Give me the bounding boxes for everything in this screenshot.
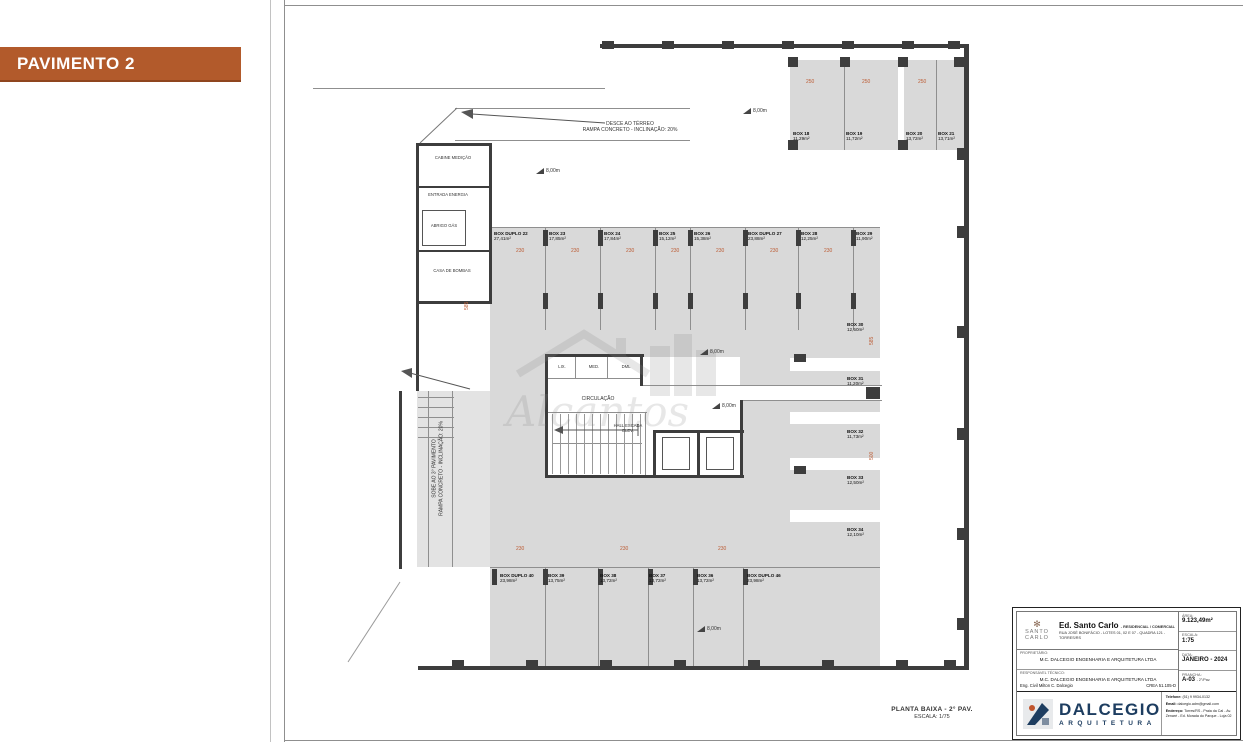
- column-stud: [722, 41, 734, 49]
- dimension-value: 230: [824, 248, 832, 254]
- sheet-fields: ÁREA: 9.123,49m² ESCALA: 1:75 DATA: JANE…: [1178, 612, 1236, 691]
- firm-band: DALCEGIO ARQUITETURA Telefone: (51) 9 99…: [1017, 691, 1236, 735]
- wall-segment: [416, 143, 492, 146]
- column-stud: [898, 57, 908, 67]
- column-stud: [543, 293, 548, 309]
- project-title: Ed. Santo Carlo: [1059, 621, 1119, 630]
- ramp-down-note: DESCE AO TÉRREO RAMPA CONCRETO - INCLINA…: [555, 121, 705, 134]
- responsible-row: RESPONSÁVEL TÉCNICO: M.C. DALCEGIO ENGEN…: [1017, 670, 1179, 691]
- parking-box-label: BOX DUPLO 2227,41m²: [494, 231, 528, 242]
- plan-line: [740, 400, 882, 401]
- wall-segment: [416, 143, 419, 304]
- level-marker: 8,00m: [712, 403, 736, 409]
- room-outline: [662, 437, 690, 470]
- plan-line: [575, 356, 576, 379]
- drawing-caption: PLANTA BAIXA - 2° PAV. ESCALA: 1/75: [872, 706, 992, 720]
- dimension-value: 230: [770, 248, 778, 254]
- sheet-margin-line: [270, 0, 271, 742]
- parking-box-label: BOX 3412,10m²: [847, 527, 864, 538]
- column-stud: [957, 618, 967, 630]
- level-flag-icon: [743, 108, 751, 114]
- column-stud: [598, 230, 603, 246]
- title-block-header: ✻ SANTO CARLO Ed. Santo Carlo - RESIDENC…: [1017, 612, 1179, 650]
- responsible-crea: CREA 51.105-D: [1146, 683, 1176, 688]
- wall-segment: [399, 391, 402, 569]
- wall-segment: [640, 354, 643, 386]
- dimension-value: 230: [716, 248, 724, 254]
- parking-box-label: BOX DUPLO 4623,98m²: [747, 573, 781, 584]
- room-outline: [706, 437, 734, 470]
- sheet-border-top: [284, 5, 1243, 6]
- column-stud: [796, 293, 801, 309]
- column-stud: [526, 660, 538, 669]
- room-label-dml: DML: [612, 364, 640, 369]
- field-data: DATA: JANEIRO - 2024: [1179, 651, 1236, 671]
- column-stud: [492, 569, 497, 585]
- floor-cutout: [643, 386, 882, 400]
- dimension-value: 585: [464, 302, 470, 310]
- title-block: ✻ SANTO CARLO Ed. Santo Carlo - RESIDENC…: [1012, 607, 1241, 740]
- column-stud: [662, 41, 674, 49]
- column-stud: [840, 57, 850, 67]
- column-stud: [842, 41, 854, 49]
- parking-box-label: BOX 3613,72m²: [697, 573, 714, 584]
- sheet-border-bottom: [284, 740, 1243, 741]
- level-flag-icon: [712, 403, 720, 409]
- title-block-inner: ✻ SANTO CARLO Ed. Santo Carlo - RESIDENC…: [1016, 611, 1237, 736]
- owner-label: PROPRIETÁRIO:: [1020, 651, 1176, 655]
- column-stud: [653, 230, 658, 246]
- field-area: ÁREA: 9.123,49m²: [1179, 612, 1236, 632]
- owner-value: M.C. DALCEGIO ENGENHARIA E ARQUITETURA L…: [1020, 657, 1176, 662]
- project-title-area: Ed. Santo Carlo - RESIDENCIAL / COMERCIA…: [1057, 621, 1179, 641]
- dimension-value: 230: [671, 248, 679, 254]
- parking-box-label: BOX 3312,50m²: [847, 475, 864, 486]
- santo-carlo-logo-icon: ✻: [1017, 620, 1057, 629]
- wall-segment: [416, 301, 492, 304]
- wall-segment: [545, 475, 744, 478]
- column-stud: [788, 57, 798, 67]
- field-escala: ESCALA: 1:75: [1179, 632, 1236, 652]
- parking-box-label: BOX 1811,29m²: [793, 131, 810, 142]
- plan-line: [455, 108, 690, 109]
- column-stud: [794, 354, 806, 362]
- parking-box-label: BOX DUPLO 2723,88m²: [748, 231, 782, 242]
- floor-cutout: [790, 412, 880, 424]
- owner-row: PROPRIETÁRIO: M.C. DALCEGIO ENGENHARIA E…: [1017, 650, 1179, 670]
- parking-box-label: BOX 3713,72m²: [649, 573, 666, 584]
- floor-cutout: [790, 510, 880, 522]
- dimension-value: 250: [918, 79, 926, 85]
- column-stud: [600, 660, 612, 669]
- santo-carlo-logo: ✻ SANTO CARLO: [1017, 620, 1057, 641]
- column-stud: [851, 293, 856, 309]
- project-subtitle: - RESIDENCIAL / COMERCIAL: [1121, 625, 1175, 629]
- room-label-hall: HALL ESCADA ELEV.: [600, 423, 656, 433]
- wall-segment: [545, 354, 644, 357]
- contact-phone: (51) 9 9934-0132: [1182, 695, 1210, 699]
- parking-box-label: BOX 2911,90m²: [856, 231, 873, 242]
- level-marker: 8,00m: [536, 168, 560, 174]
- column-stud: [452, 660, 464, 669]
- column-stud: [653, 293, 658, 309]
- parking-box-label: BOX 3111,20m²: [847, 376, 864, 387]
- project-address: RUA JOSÉ BONIFÁCIO - LOTES 01, 02 E 07 -…: [1059, 631, 1179, 641]
- responsible-engineer: Eng. Civil Milton C. Dalcegio: [1020, 683, 1073, 688]
- plan-line: [547, 412, 647, 413]
- column-stud: [957, 226, 967, 238]
- parking-box-label: BOX 3913,75m²: [548, 573, 565, 584]
- plan-line: [490, 227, 880, 228]
- sheet: PAVIMENTO 2 Alcantos BOX 1811,29m²BOX 19…: [0, 0, 1243, 742]
- column-stud: [543, 230, 548, 246]
- room-label-circulacao: CIRCULAÇÃO: [558, 396, 638, 402]
- responsible-value: M.C. DALCEGIO ENGENHARIA E ARQUITETURA L…: [1020, 677, 1176, 682]
- column-stud: [902, 41, 914, 49]
- field-prancha: PRANCHA: A-03 - 2°/Pav.: [1179, 671, 1236, 691]
- dimension-value: 250: [862, 79, 870, 85]
- floor-label-banner: PAVIMENTO 2: [0, 47, 241, 82]
- dimension-value: 230: [718, 546, 726, 552]
- column-stud: [602, 41, 614, 49]
- level-flag-icon: [697, 626, 705, 632]
- contact-info: Telefone: (51) 9 9934-0132 Email: dalceg…: [1161, 692, 1236, 735]
- plan-line: [645, 412, 646, 476]
- parking-box-label: BOX 3012,50m²: [847, 322, 864, 333]
- dimension-value: 230: [571, 248, 579, 254]
- dalcegio-logo-icon: [1023, 699, 1053, 729]
- wall-segment: [740, 400, 743, 478]
- parking-box-label: BOX 2113,71m²: [938, 131, 955, 142]
- column-stud: [598, 293, 603, 309]
- column-stud: [743, 293, 748, 309]
- caption-scale: ESCALA: 1/75: [872, 714, 992, 720]
- room-label-medidores: MED.: [580, 364, 608, 369]
- contact-email: dalcegio.adm@gmail.com: [1178, 702, 1219, 706]
- plan-line: [547, 378, 642, 379]
- column-stud: [674, 660, 686, 669]
- column-stud: [748, 660, 760, 669]
- column-stud: [948, 41, 960, 49]
- plan-line: [455, 140, 690, 141]
- column-stud: [944, 660, 956, 669]
- parking-box-label: BOX 2417,84m²: [604, 231, 621, 242]
- column-stud: [957, 326, 967, 338]
- dimension-value: 230: [620, 546, 628, 552]
- parking-box-label: BOX 1911,72m²: [846, 131, 863, 142]
- floor-cutout: [898, 60, 904, 150]
- plan-line: [313, 88, 605, 89]
- dimension-value: 500: [869, 452, 875, 460]
- ramp-up-note: SOBE AO 3° PAVIMENTO RAMPA CONCRETO - IN…: [432, 384, 445, 554]
- room-label-cabine: CABINE MEDIÇÃO: [418, 155, 488, 160]
- column-stud: [866, 387, 880, 399]
- dimension-value: 230: [516, 248, 524, 254]
- room-label-bombas: CASA DE BOMBAS: [420, 268, 484, 273]
- wall-segment: [418, 186, 489, 188]
- dalcegio-wordmark: DALCEGIO ARQUITETURA: [1059, 701, 1161, 727]
- wall-segment: [653, 430, 656, 476]
- column-stud: [957, 428, 967, 440]
- dimension-value: 230: [626, 248, 634, 254]
- column-stud: [782, 41, 794, 49]
- dimension-value: 585: [869, 337, 875, 345]
- wall-segment: [416, 304, 419, 391]
- plan-line: [844, 60, 845, 150]
- column-stud: [954, 57, 964, 67]
- column-stud: [688, 293, 693, 309]
- level-marker: 8,00m: [743, 108, 767, 114]
- dimension-value: 250: [806, 79, 814, 85]
- column-stud: [688, 230, 693, 246]
- wall-segment: [489, 143, 492, 304]
- caption-title: PLANTA BAIXA - 2° PAV.: [872, 706, 992, 713]
- column-stud: [957, 148, 967, 160]
- wall-segment: [964, 44, 969, 670]
- parking-box-label: BOX 2013,72m²: [906, 131, 923, 142]
- parking-box-label: BOX 3211,73m²: [847, 429, 864, 440]
- parking-box-label: BOX 2317,85m²: [549, 231, 566, 242]
- sheet-border-left: [284, 0, 285, 742]
- wall-segment: [418, 666, 968, 670]
- parking-box-label: BOX 2615,38m²: [694, 231, 711, 242]
- parking-box-label: BOX 2812,25m²: [801, 231, 818, 242]
- room-label-gas: ABRIGO GÁS: [422, 223, 466, 228]
- wall-segment: [418, 250, 489, 252]
- floor-label: PAVIMENTO 2: [0, 54, 135, 74]
- room-label-lixeira: LIX.: [549, 364, 575, 369]
- wall-segment: [697, 430, 700, 476]
- level-marker: 8,00m: [697, 626, 721, 632]
- dimension-value: 230: [516, 546, 524, 552]
- room-label-energia: ENTRADA ENERGIA: [416, 192, 480, 197]
- responsible-label: RESPONSÁVEL TÉCNICO:: [1020, 671, 1176, 675]
- parking-box-label: BOX 2515,12m²: [659, 231, 676, 242]
- level-marker: 8,00m: [700, 349, 724, 355]
- parking-box-label: BOX DUPLO 4023,98m²: [500, 573, 534, 584]
- level-flag-icon: [700, 349, 708, 355]
- column-stud: [822, 660, 834, 669]
- level-flag-icon: [536, 168, 544, 174]
- column-stud: [896, 660, 908, 669]
- column-stud: [957, 528, 967, 540]
- plan-line: [490, 567, 880, 568]
- column-stud: [794, 466, 806, 474]
- plan-line: [936, 60, 937, 150]
- wall-segment: [545, 354, 548, 478]
- parking-box-label: BOX 3813,72m²: [600, 573, 617, 584]
